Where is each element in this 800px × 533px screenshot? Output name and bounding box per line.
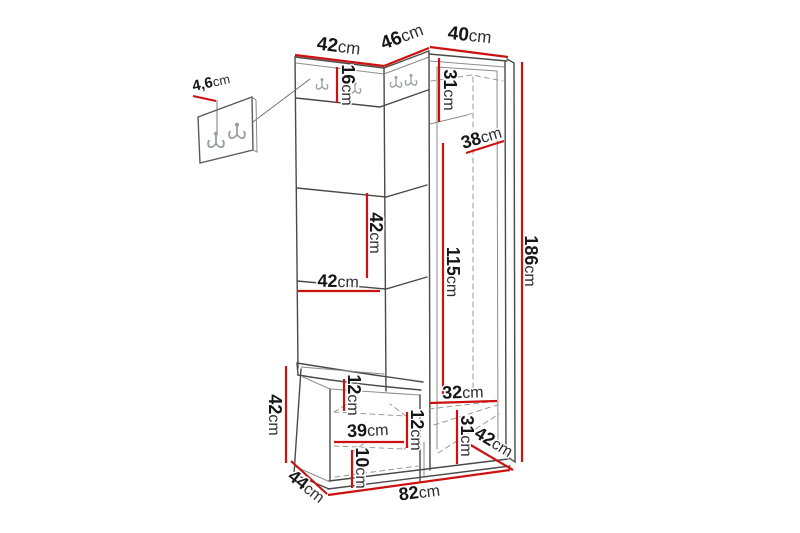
wardrobe-top-edge-inner (430, 61, 505, 67)
dim-label-top-left-width: 42cm (316, 33, 362, 59)
dimension-labels: 42cm 46cm 40cm 4,6cm 16cm 31cm 38cm 115c… (191, 19, 541, 507)
dim-label-bench-height: 42cm (265, 394, 285, 435)
wardrobe-left-edge (429, 51, 430, 470)
left-edge (295, 57, 298, 368)
dim-label-wardrobe-side-depth: 42cm (471, 423, 517, 461)
dim-label-wardrobe-bottom-width: 32cm (442, 381, 484, 402)
dim-label-hook-rail-height: 16cm (338, 64, 358, 105)
dim-label-top-middle-width: 46cm (378, 19, 426, 54)
dim-label-wardrobe-door-height: 115cm (443, 247, 463, 297)
coat-hooks (316, 74, 416, 93)
hook-detail-panel (198, 79, 310, 163)
detail-panel-face (198, 97, 253, 163)
coat-hook-icon (390, 76, 401, 87)
bench-interior-diag-2 (390, 404, 406, 416)
hook-panel-bottom-edge (296, 90, 428, 107)
bench-back-left-edge (294, 369, 301, 474)
dim-label-bench-opening-height: 12cm (407, 409, 427, 450)
diagram-canvas: 42cm 46cm 40cm 4,6cm 16cm 31cm 38cm 115c… (0, 0, 800, 533)
dim-label-bench-opening-width: 39cm (347, 419, 389, 441)
coat-hook-icon (316, 78, 327, 89)
dim-label-open-shelf-width: 42cm (317, 271, 359, 292)
dim-label-bench-drawer-height: 10cm (352, 447, 372, 488)
dim-label-bench-top-gap: 12cm (344, 374, 364, 415)
callout-leader-line (253, 79, 310, 122)
dim-label-top-right-width: 40cm (447, 23, 493, 48)
cushion-left-cap (297, 363, 298, 375)
dim-label-wardrobe-top-height: 31cm (440, 69, 460, 110)
dim-label-hook-detail-depth: 4,6cm (191, 70, 232, 95)
top-shelf-line-hidden (467, 113, 473, 115)
dim-label-wardrobe-bottom-height: 31cm (457, 415, 477, 456)
furniture-dimension-diagram: 42cm 46cm 40cm 4,6cm 16cm 31cm 38cm 115c… (0, 0, 800, 533)
wardrobe-right-side-edge (506, 59, 515, 462)
top-shelf-line (430, 115, 467, 124)
dim-label-open-shelf-height: 42cm (366, 212, 386, 253)
wardrobe-right-front-edge (505, 62, 506, 456)
shelf-edge-upper (297, 185, 427, 197)
dim-line-hook-detail-depth (193, 96, 216, 101)
left-section (295, 57, 428, 391)
dim-label-total-height: 186cm (521, 235, 541, 286)
cushion-back-edge (301, 367, 384, 374)
coat-hook-icon (405, 74, 416, 85)
